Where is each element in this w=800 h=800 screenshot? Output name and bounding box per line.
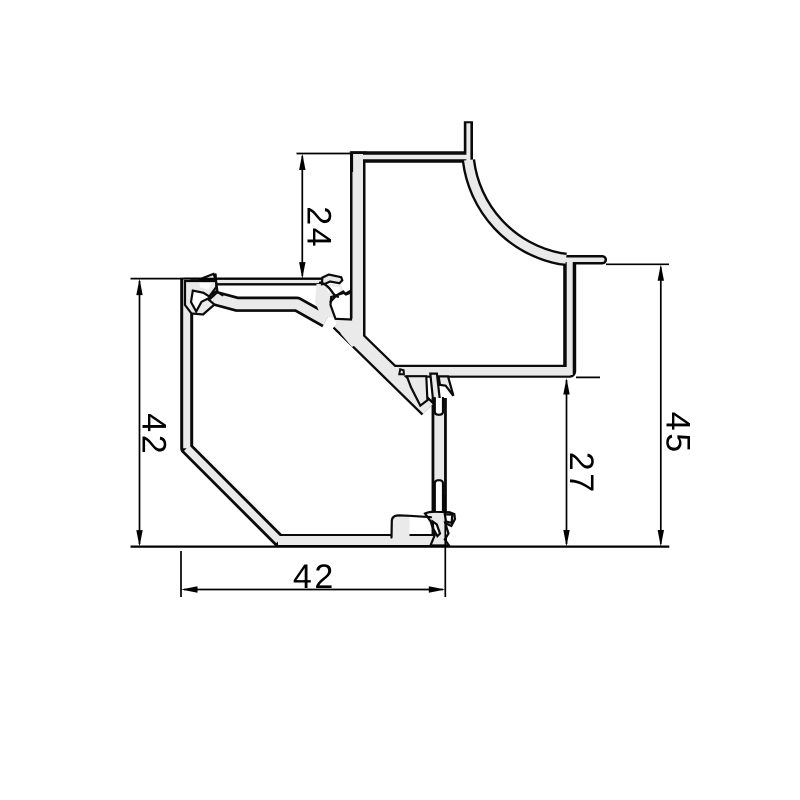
svg-text:27: 27 bbox=[562, 452, 600, 495]
svg-text:42: 42 bbox=[293, 558, 336, 596]
svg-text:24: 24 bbox=[299, 206, 337, 249]
svg-text:45: 45 bbox=[658, 412, 696, 455]
svg-text:42: 42 bbox=[135, 413, 173, 456]
